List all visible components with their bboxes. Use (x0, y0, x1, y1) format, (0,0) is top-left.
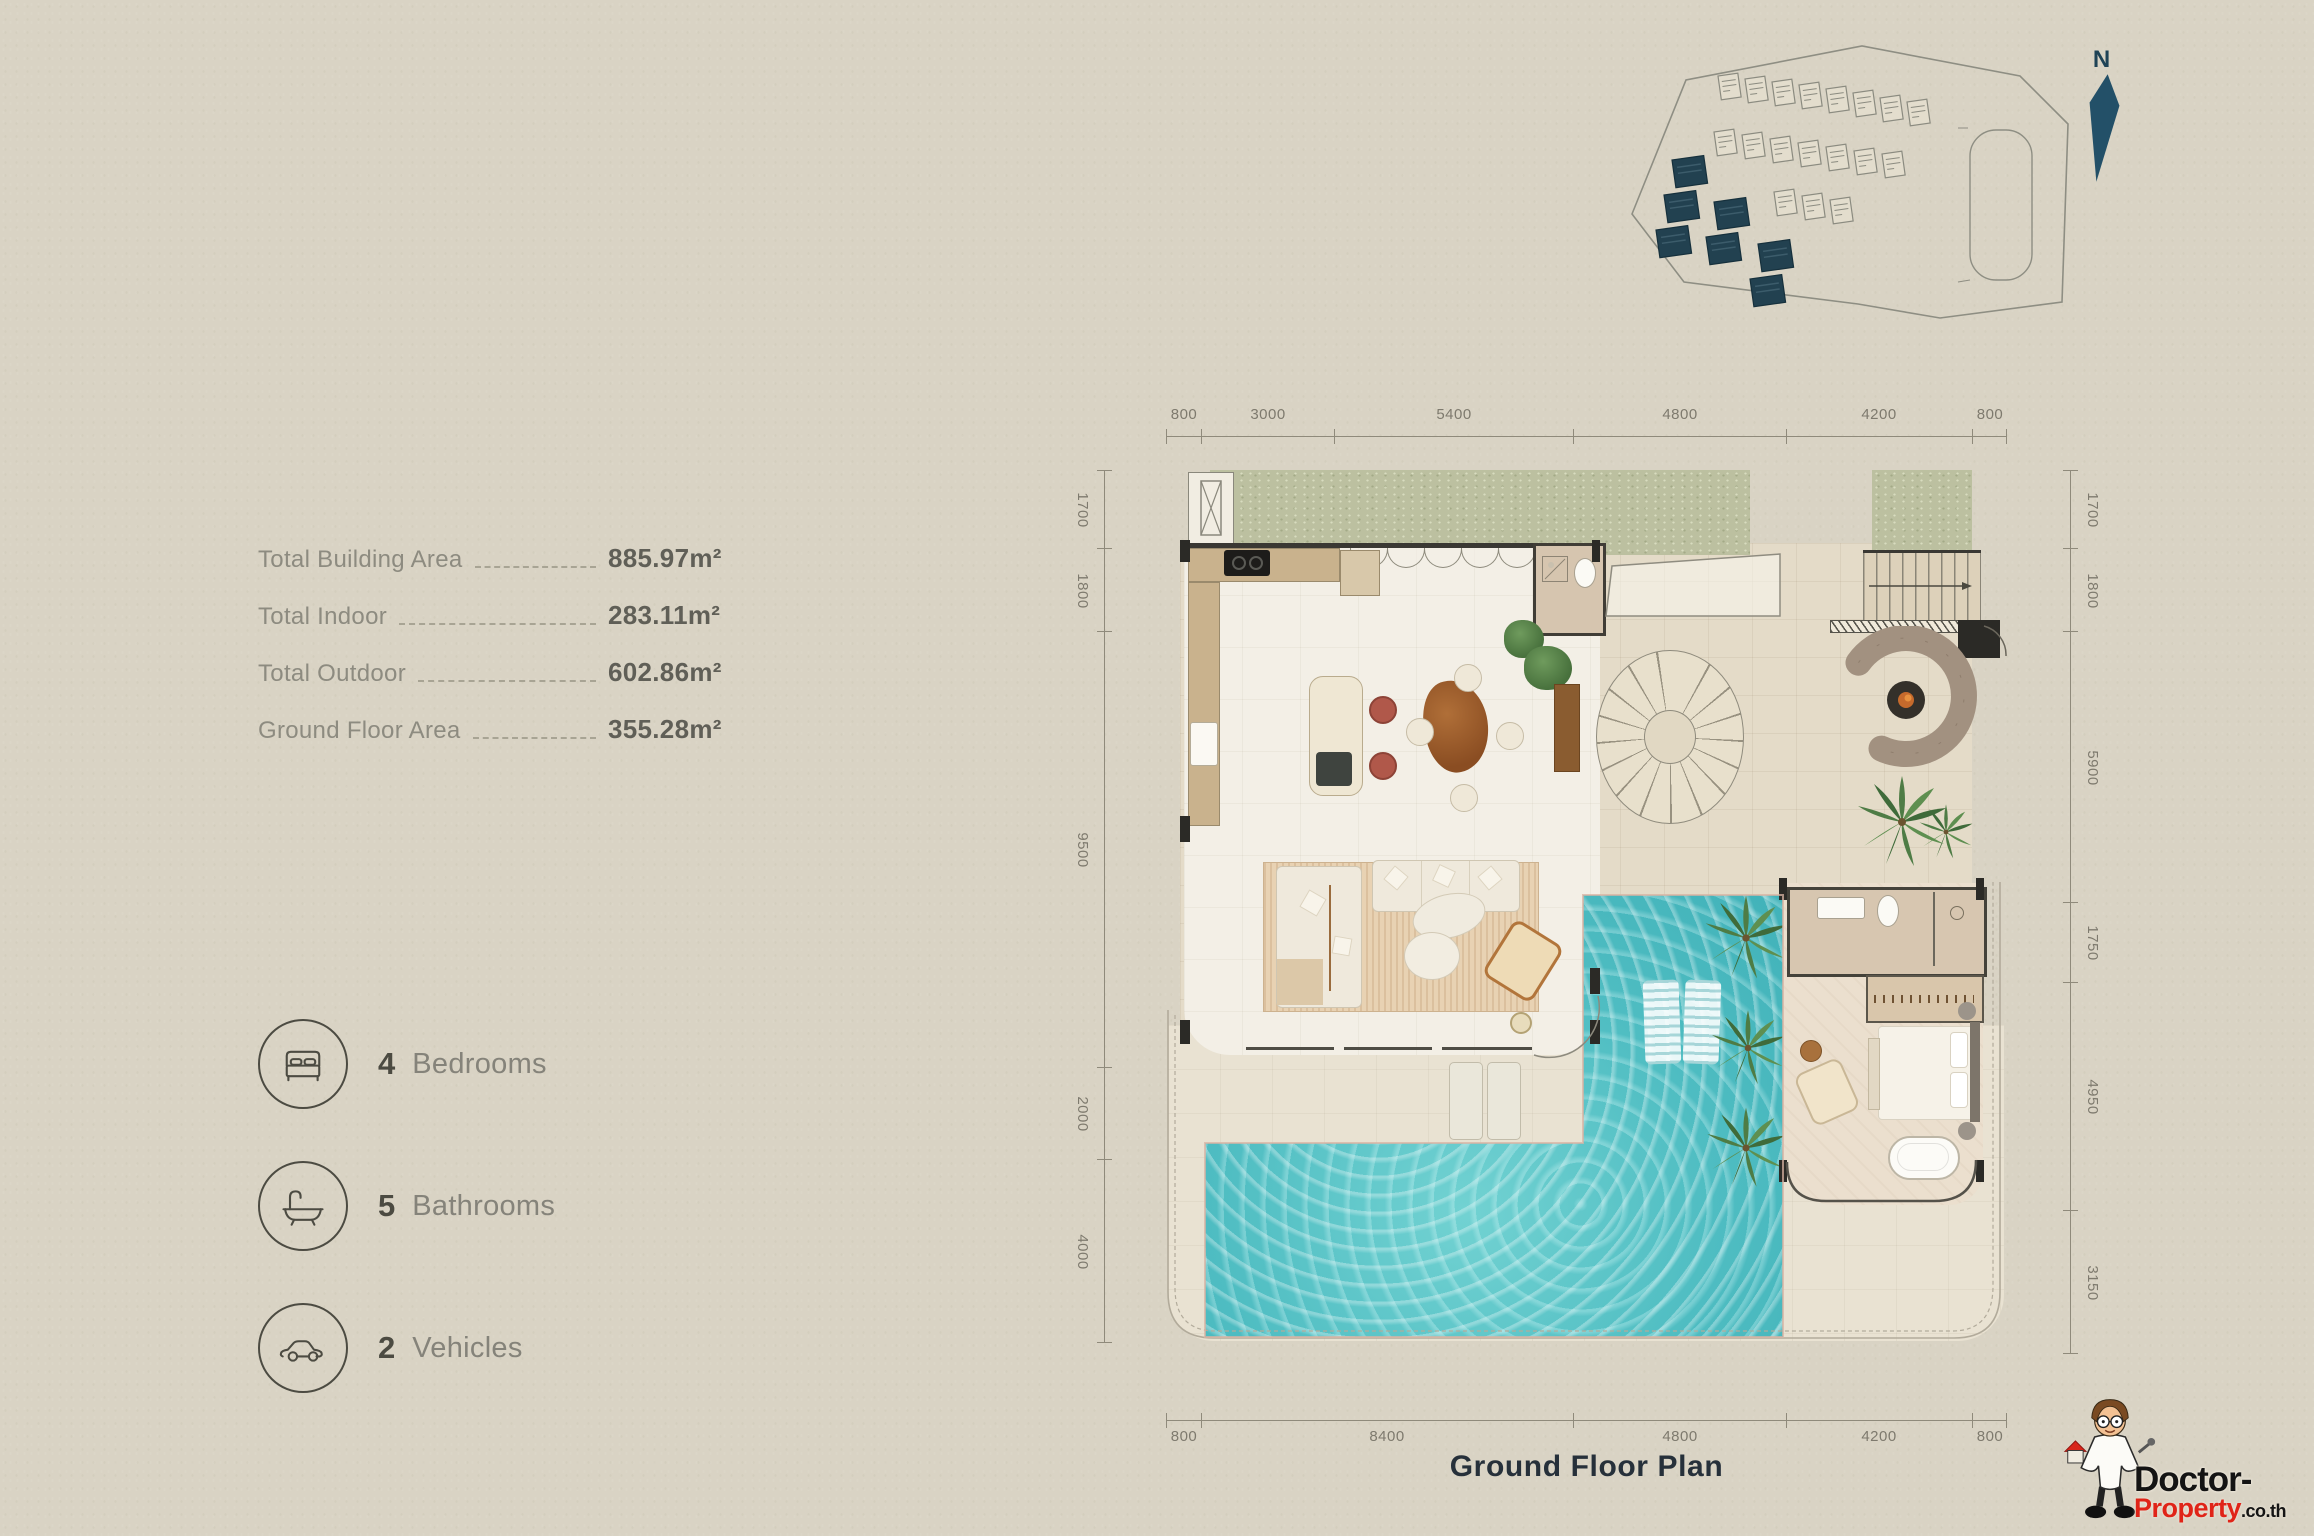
dimension-tick (2006, 1413, 2007, 1428)
brand-line1: Doctor- (2134, 1464, 2286, 1496)
stat-value: 885.97m² (608, 543, 744, 574)
dimension-tick (2063, 982, 2078, 983)
dotted-leader (473, 737, 596, 739)
feature-bedrooms: 4 Bedrooms (258, 1020, 555, 1108)
dimension-label: 800 (1144, 406, 1224, 424)
dimension-label: 1700 (1073, 470, 1091, 550)
dimension-tick (1334, 429, 1335, 444)
feature-bathrooms: 5 Bathrooms (258, 1162, 555, 1250)
north-kite-icon (2080, 74, 2124, 182)
dimension-label: 4000 (1073, 1212, 1091, 1292)
feature-count: 2 (378, 1330, 395, 1366)
plan-outlines (1166, 470, 2007, 1354)
dimension-label: 2000 (1073, 1074, 1091, 1154)
floor-plan (1166, 470, 2007, 1354)
dimension-tick (1166, 429, 1167, 444)
dimension-label: 5900 (2083, 728, 2101, 808)
north-label: N (2070, 46, 2134, 74)
feature-list: 4 Bedrooms 5 Bathrooms 2 Vehicles (258, 1020, 555, 1446)
north-arrow: N (2070, 46, 2134, 187)
dimension-tick (1097, 631, 1112, 632)
dimension-tick (1786, 429, 1787, 444)
dimension-label: 4200 (1839, 406, 1919, 424)
brand-line2: Property.co.th (2134, 1496, 2286, 1520)
page: { "page": { "title": "Ground Floor Plan"… (0, 0, 2314, 1536)
dimension-tick (1573, 1413, 1574, 1428)
stat-row: Total Outdoor 602.86m² (258, 654, 744, 688)
dimension-tick (2063, 902, 2078, 903)
dimension-tick (1201, 429, 1202, 444)
site-plan (1618, 32, 2110, 334)
dimension-tick (1097, 1342, 1112, 1343)
stat-value: 602.86m² (608, 657, 744, 688)
site-villas-highlighted (1656, 156, 1794, 307)
stat-label: Total Building Area (258, 546, 463, 574)
bathtub-icon (258, 1161, 348, 1251)
dimension-label: 1700 (2083, 470, 2101, 550)
stat-label: Ground Floor Area (258, 717, 461, 745)
dimension-tick (1201, 1413, 1202, 1428)
stat-label: Total Outdoor (258, 660, 406, 688)
dimension-tick (2063, 548, 2078, 549)
car-icon (258, 1303, 348, 1393)
dimension-line-top (1166, 436, 2007, 437)
dotted-leader (418, 680, 596, 682)
stat-row: Ground Floor Area 355.28m² (258, 711, 744, 745)
dimension-tick (1097, 1159, 1112, 1160)
dimension-label: 1750 (2083, 903, 2101, 983)
dimension-tick (2063, 470, 2078, 471)
dimension-label: 800 (1950, 406, 2030, 424)
dimension-tick (1166, 1413, 1167, 1428)
dimension-line-bottom (1166, 1420, 2007, 1421)
dimension-tick (2063, 1353, 2078, 1354)
dotted-leader (399, 623, 596, 625)
feature-vehicles: 2 Vehicles (258, 1304, 555, 1392)
dimension-line-right (2070, 470, 2071, 1354)
brand-suffix: .co.th (2241, 1501, 2286, 1521)
feature-label: Bedrooms (412, 1048, 547, 1081)
feature-label: Vehicles (412, 1332, 522, 1365)
dimension-tick (2063, 1210, 2078, 1211)
stat-value: 283.11m² (608, 600, 744, 631)
dimension-label: 4200 (1839, 1428, 1919, 1446)
dimension-label: 3150 (2083, 1243, 2101, 1323)
stat-label: Total Indoor (258, 603, 387, 631)
stat-row: Total Building Area 885.97m² (258, 540, 744, 574)
dimension-label: 5400 (1414, 406, 1494, 424)
dimension-tick (1097, 1067, 1112, 1068)
brand-text: Doctor- Property.co.th (2134, 1464, 2286, 1520)
dimension-tick (2006, 429, 2007, 444)
dimension-label: 3000 (1228, 406, 1308, 424)
feature-count: 5 (378, 1188, 395, 1224)
feature-count: 4 (378, 1046, 395, 1082)
dimension-label: 4950 (2083, 1057, 2101, 1137)
dimension-label: 9500 (1073, 810, 1091, 890)
stat-row: Total Indoor 283.11m² (258, 597, 744, 631)
dimension-tick (2063, 631, 2078, 632)
dimension-tick (1972, 1413, 1973, 1428)
plan-title: Ground Floor Plan (1166, 1450, 2007, 1484)
dimension-label: 4800 (1640, 406, 1720, 424)
dimension-tick (1786, 1413, 1787, 1428)
feature-label: Bathrooms (412, 1190, 555, 1223)
dimension-label: 4800 (1640, 1428, 1720, 1446)
dimension-label: 800 (1950, 1428, 2030, 1446)
dimension-label: 800 (1144, 1428, 1224, 1446)
dimension-label: 8400 (1347, 1428, 1427, 1446)
dimension-label: 1800 (2083, 551, 2101, 631)
dimension-tick (1573, 429, 1574, 444)
stat-value: 355.28m² (608, 714, 744, 745)
dimension-line-left (1104, 470, 1105, 1343)
dimension-tick (1097, 548, 1112, 549)
dotted-leader (475, 566, 597, 568)
bed-icon (258, 1019, 348, 1109)
dimension-tick (1972, 429, 1973, 444)
site-road-loop (1970, 130, 2032, 280)
dimension-label: 1800 (1073, 551, 1091, 631)
area-stats: Total Building Area 885.97m² Total Indoo… (258, 540, 744, 768)
watermark-logo: Doctor- Property.co.th (2062, 1394, 2286, 1530)
dimension-tick (1097, 470, 1112, 471)
